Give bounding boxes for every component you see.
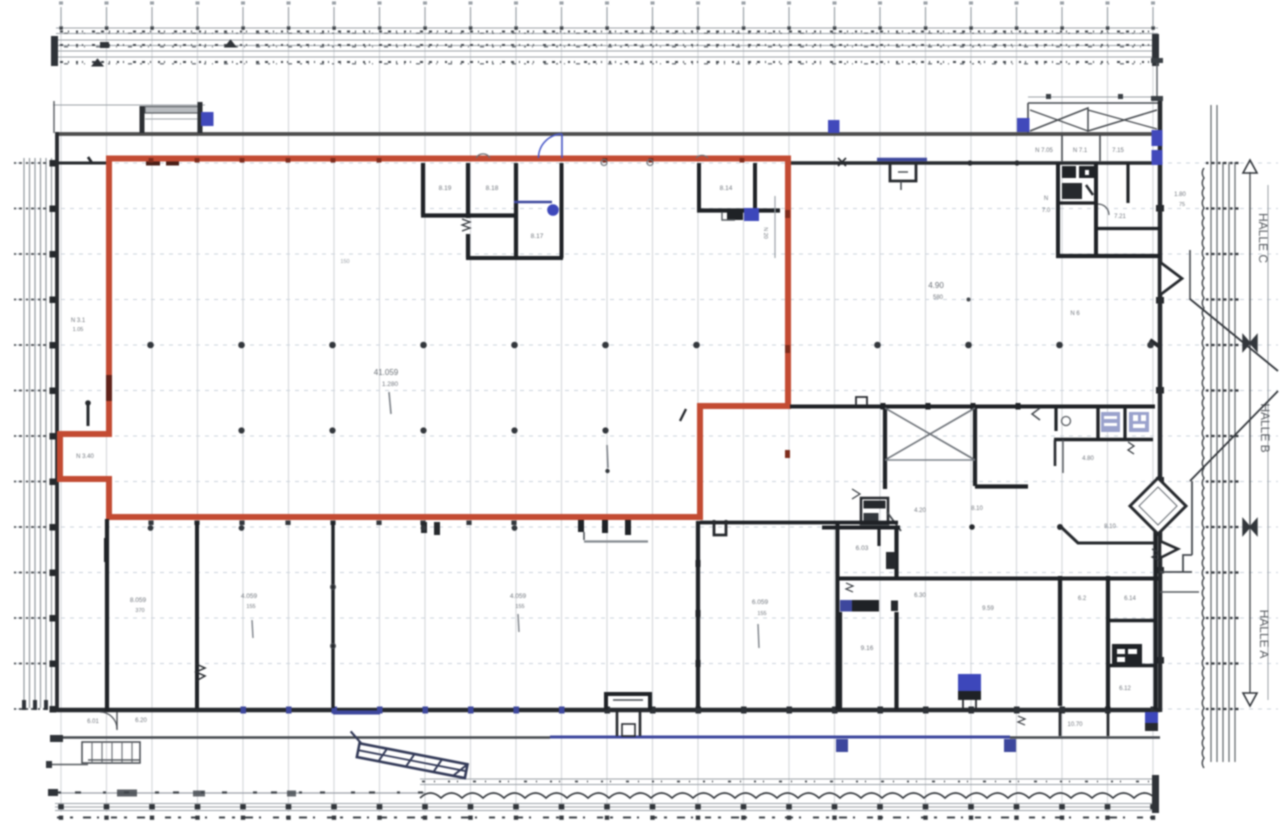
svg-text:1.280: 1.280 xyxy=(382,381,399,388)
svg-text:6.059: 6.059 xyxy=(752,599,769,606)
svg-text:N: N xyxy=(1044,196,1048,202)
svg-text:8.059: 8.059 xyxy=(130,597,147,604)
svg-text:6.30: 6.30 xyxy=(914,593,926,599)
svg-text:N 6: N 6 xyxy=(1070,311,1080,317)
svg-text:6.20: 6.20 xyxy=(135,718,147,724)
svg-text:N 3.40: N 3.40 xyxy=(76,454,94,460)
svg-text:6.14: 6.14 xyxy=(1124,596,1136,602)
svg-text:7.21: 7.21 xyxy=(1114,214,1126,220)
svg-text:75: 75 xyxy=(1179,202,1185,208)
svg-text:4.20: 4.20 xyxy=(914,508,926,514)
svg-text:HALLE B: HALLE B xyxy=(1258,403,1272,452)
svg-text:N 3.1: N 3.1 xyxy=(71,318,86,324)
svg-text:6.12: 6.12 xyxy=(1119,686,1131,692)
svg-text:4.059: 4.059 xyxy=(510,593,527,600)
svg-text:370: 370 xyxy=(135,608,144,614)
svg-text:155: 155 xyxy=(515,604,524,610)
svg-text:4.80: 4.80 xyxy=(1082,456,1094,462)
svg-text:6.03: 6.03 xyxy=(856,545,869,552)
svg-text:N 7.1: N 7.1 xyxy=(1073,148,1088,154)
svg-text:10.70: 10.70 xyxy=(1067,722,1083,728)
svg-text:N 20: N 20 xyxy=(762,227,768,239)
svg-text:6.2: 6.2 xyxy=(1078,596,1087,602)
svg-text:8.14: 8.14 xyxy=(720,185,733,192)
svg-text:8.19: 8.19 xyxy=(439,185,452,192)
svg-text:9.59: 9.59 xyxy=(982,606,994,612)
svg-text:150: 150 xyxy=(340,259,349,265)
svg-text:155: 155 xyxy=(757,611,766,617)
svg-text:8.17: 8.17 xyxy=(531,233,544,240)
svg-text:4.059: 4.059 xyxy=(241,593,258,600)
svg-text:HALLE A: HALLE A xyxy=(1257,610,1271,659)
svg-text:8.10: 8.10 xyxy=(1104,524,1116,530)
svg-text:7.15: 7.15 xyxy=(1112,148,1124,154)
svg-text:1.80: 1.80 xyxy=(1174,192,1186,198)
svg-text:580: 580 xyxy=(933,295,944,301)
svg-text:6.01: 6.01 xyxy=(87,719,99,725)
svg-text:41.059: 41.059 xyxy=(374,368,399,377)
svg-text:HALLE C: HALLE C xyxy=(1256,213,1270,263)
svg-text:1.05: 1.05 xyxy=(73,327,84,333)
svg-text:8.18: 8.18 xyxy=(486,185,499,192)
svg-text:8.10: 8.10 xyxy=(971,506,983,512)
svg-text:7.0: 7.0 xyxy=(1042,208,1051,214)
svg-text:N 7.05: N 7.05 xyxy=(1035,148,1053,154)
svg-text:155: 155 xyxy=(246,604,255,610)
svg-text:9.16: 9.16 xyxy=(861,645,874,652)
svg-text:4.90: 4.90 xyxy=(928,281,944,290)
